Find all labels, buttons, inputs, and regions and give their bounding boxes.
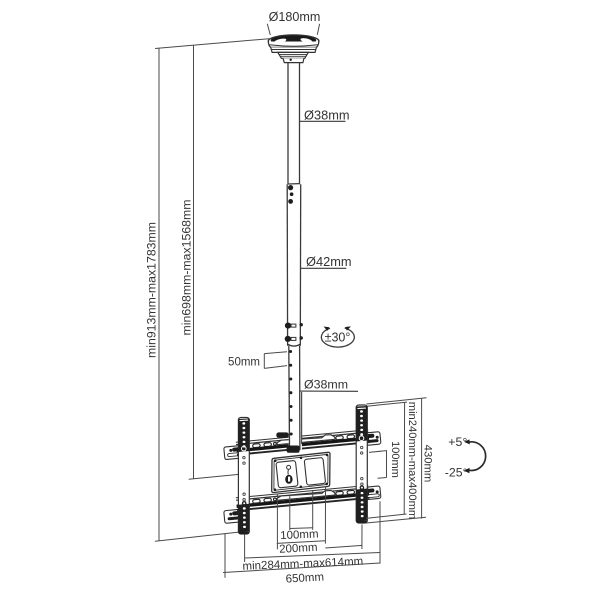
svg-text:-25°: -25° [445,466,468,480]
svg-text:650mm: 650mm [285,571,324,585]
svg-text:100mm: 100mm [280,528,319,542]
svg-text:±30°: ±30° [325,331,351,345]
svg-text:Ø180mm: Ø180mm [269,10,321,24]
svg-text:Ø42mm: Ø42mm [306,254,352,269]
svg-text:Ø38mm: Ø38mm [304,108,350,123]
svg-text:Ø38mm: Ø38mm [304,378,348,392]
svg-text:430mm: 430mm [422,445,434,483]
svg-text:200mm: 200mm [279,542,318,556]
svg-text:min698mm-max1568mm: min698mm-max1568mm [180,200,194,336]
svg-text:min913mm-max1783mm: min913mm-max1783mm [145,222,159,358]
svg-text:50mm: 50mm [228,357,260,369]
svg-text:100mm: 100mm [389,441,401,478]
svg-text:min240mm-max400mm: min240mm-max400mm [406,402,418,520]
